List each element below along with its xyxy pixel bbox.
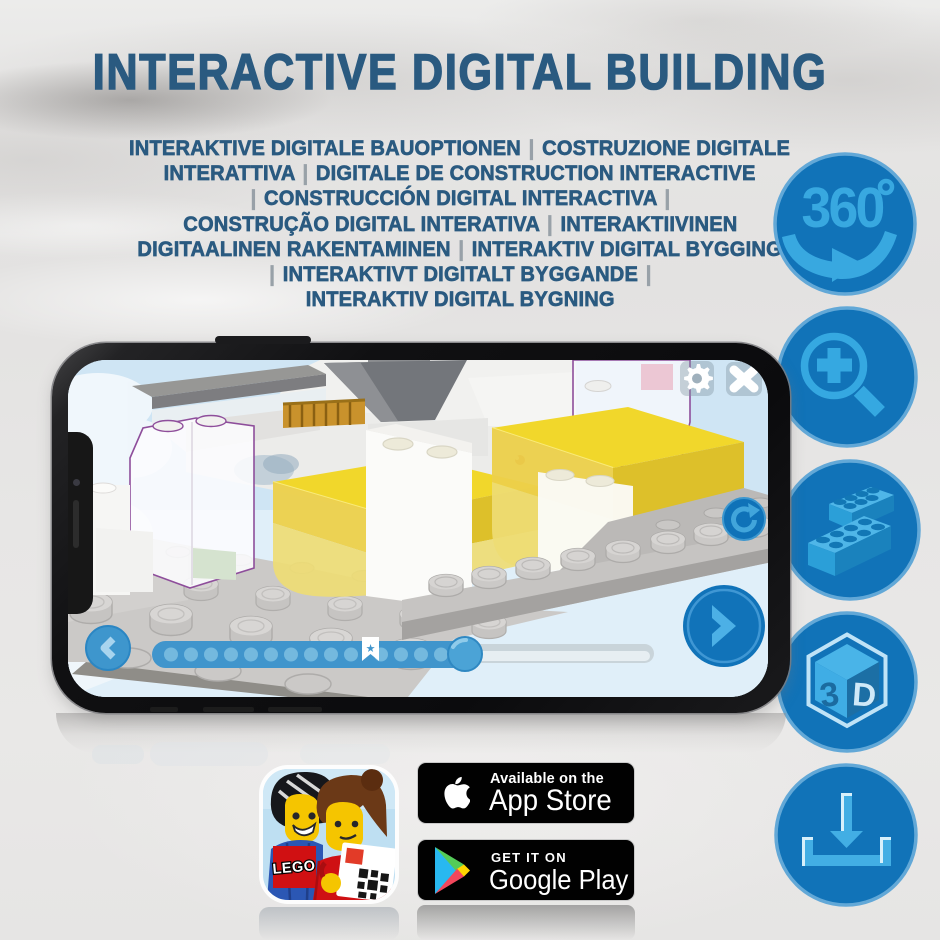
svg-text:★: ★ <box>366 643 376 655</box>
svg-text:360: 360 <box>802 175 884 239</box>
svg-text:D: D <box>851 675 877 714</box>
